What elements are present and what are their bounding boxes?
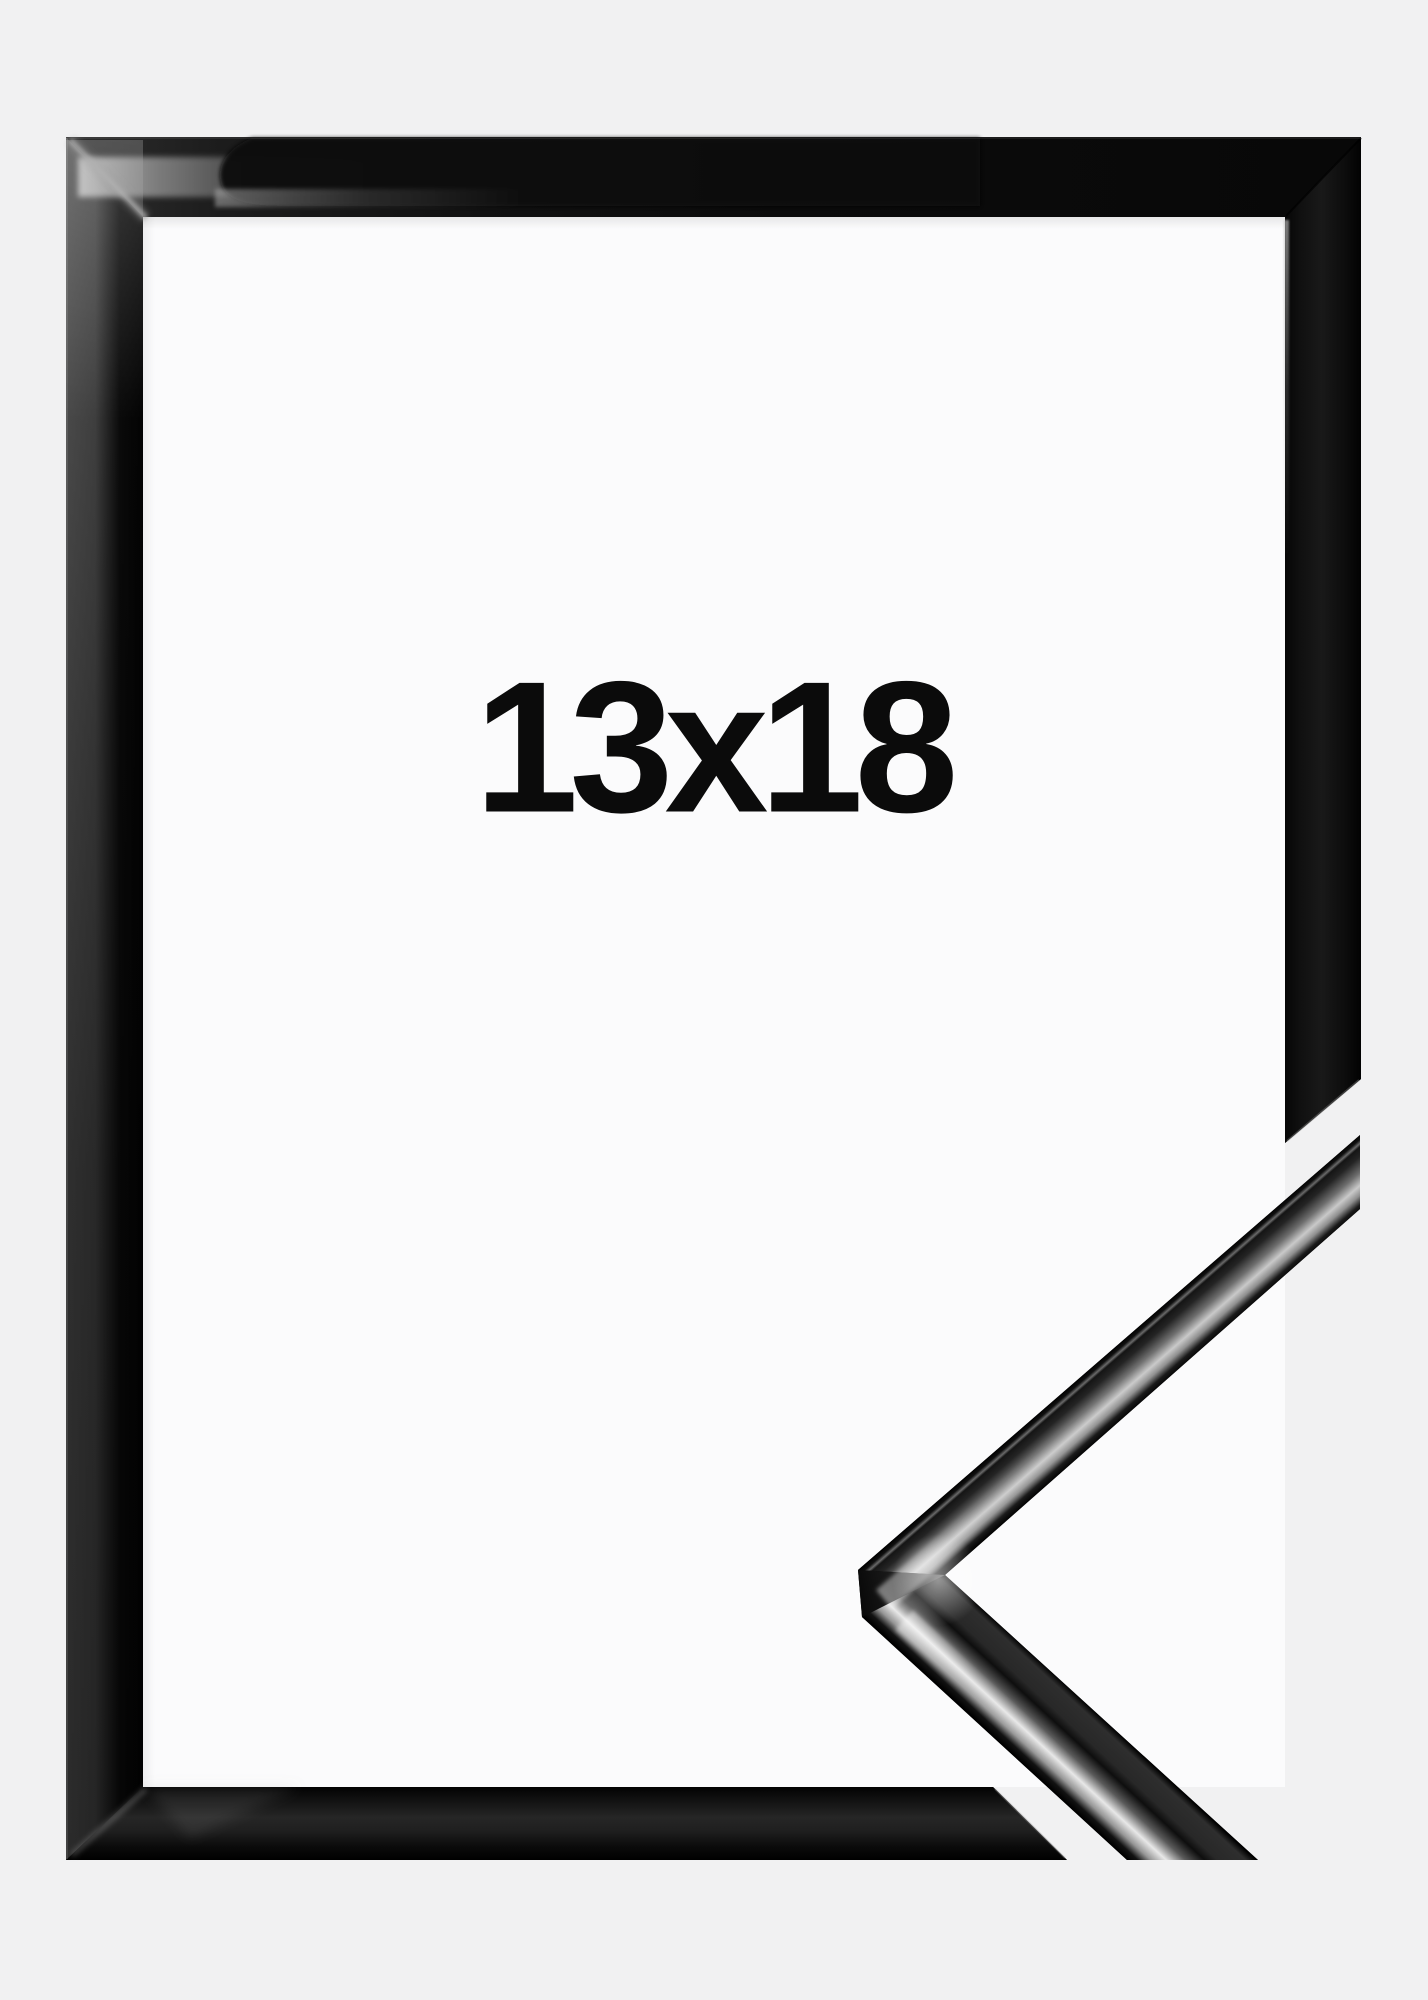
top-bar-highlight-band-2 xyxy=(215,189,525,207)
frame-opening xyxy=(143,217,1285,1787)
frame-right-bar-shading xyxy=(1285,137,1361,1143)
product-photo: 13x18 xyxy=(0,0,1428,2000)
right-bar-inner-edge-highlight xyxy=(1284,220,1289,560)
frame-illustration xyxy=(0,0,1428,2000)
opening-inner-shadow-top xyxy=(143,217,1285,229)
corner-sample-tip-glow xyxy=(892,1534,984,1626)
opening-inner-shadow-left xyxy=(143,217,155,1787)
size-label: 13x18 xyxy=(474,654,949,841)
